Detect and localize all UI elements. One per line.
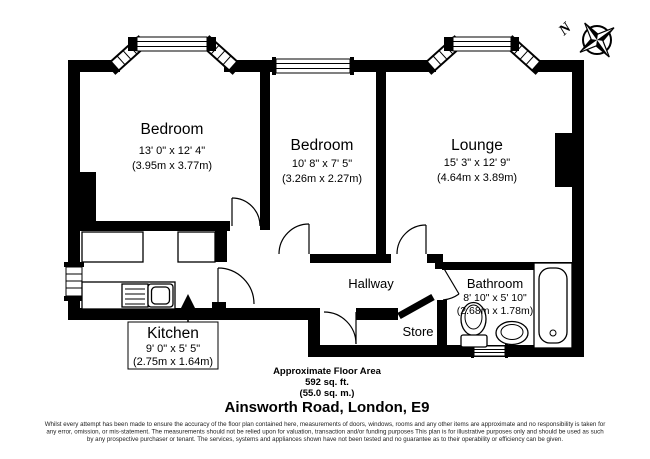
label-bedroom2-name: Bedroom [291, 137, 354, 154]
wall-bathroom-left [437, 300, 447, 345]
door-bedroom2 [279, 224, 309, 254]
wall-bed1-bottom [80, 221, 230, 231]
bay1-window-center [137, 37, 207, 51]
partition-bed1-bed2 [260, 72, 270, 230]
wall-bed2-bottom [310, 254, 378, 263]
disclaimer-line2: any error, omission, or mis-statement. T… [46, 429, 604, 436]
bay-window-lounge [422, 35, 545, 75]
floorplan-drawing: N Bedroom 13' 0" x 12' 4" (3.95m x 3.77m… [0, 0, 650, 459]
label-lounge-metric: (4.64m x 3.89m) [437, 172, 517, 184]
basin [496, 322, 528, 345]
label-bedroom1-metric: (3.95m x 3.77m) [132, 160, 212, 172]
compass-north-label: N [555, 19, 575, 40]
door-kitchen [218, 268, 254, 304]
floor-area-sqm: (55.0 sq. m.) [300, 388, 355, 399]
toilet-cistern [461, 335, 487, 347]
kitchen-unit-right [178, 232, 215, 262]
footer: Approximate Floor Area 592 sq. ft. (55.0… [45, 366, 606, 443]
kitchen-sink [122, 284, 173, 307]
bay-window-bedroom1 [106, 35, 242, 75]
bathtub-drain [550, 330, 556, 336]
label-lounge-imperial: 15' 3" x 12' 9" [444, 157, 511, 169]
bay2-window-center [453, 37, 511, 51]
door-lounge [397, 225, 426, 254]
label-bedroom2-metric: (3.26m x 2.27m) [282, 173, 362, 185]
label-hallway: Hallway [348, 276, 394, 291]
label-bedroom1-imperial: 13' 0" x 12' 4" [139, 145, 206, 157]
disclaimer-line3: by any prospective purchaser or tenant. … [87, 436, 563, 443]
label-kitchen-name: Kitchen [147, 325, 199, 342]
property-address: Ainsworth Road, London, E9 [225, 399, 430, 416]
door-store-lobby [324, 312, 356, 344]
label-kitchen-imperial: 9' 0" x 5' 5" [146, 343, 200, 355]
partition-bed2-lounge [376, 72, 386, 263]
wall-bottom-step [308, 308, 320, 350]
wall-store-diagonal [399, 297, 433, 316]
wall-nub-bathroom-corner [435, 261, 443, 269]
bathtub [534, 263, 572, 348]
wall-lounge-bottom-stub-left [386, 254, 391, 263]
floorplan-page: N Bedroom 13' 0" x 12' 4" (3.95m x 3.77m… [0, 0, 650, 459]
bay1-corner-post-left [128, 37, 137, 51]
wall-bottom-left [68, 308, 312, 320]
kitchen-unit-left [82, 232, 143, 262]
bay2-corner-post-left [444, 37, 453, 51]
wall-kitchen-right-stub [215, 229, 227, 262]
doors [218, 198, 459, 344]
wall-top-mid2 [350, 60, 436, 72]
label-lounge-name: Lounge [451, 137, 503, 154]
label-bedroom1-name: Bedroom [141, 121, 204, 138]
label-bathroom-metric: (2.68m x 1.78m) [457, 305, 533, 317]
floor-area-heading: Approximate Floor Area [273, 366, 382, 377]
chimney-breast-lounge [555, 133, 572, 187]
kitchen-fixtures [82, 232, 215, 309]
compass: N [555, 19, 614, 57]
wall-right [572, 60, 584, 357]
door-nub-kitchen [212, 302, 226, 310]
disclaimer-line1: Whilst every attempt has been made to en… [45, 421, 606, 428]
wall-bottom-stub [356, 308, 398, 320]
window-bedroom2 [272, 57, 354, 75]
label-bathroom-name: Bathroom [467, 276, 523, 291]
window-kitchen [64, 262, 84, 301]
label-bedroom2-imperial: 10' 8" x 7' 5" [292, 158, 352, 170]
door-bedroom1 [232, 198, 260, 226]
door-bathroom [443, 267, 459, 300]
bay1-corner-post-right [207, 37, 216, 51]
label-bathroom-imperial: 8' 10" x 5' 10" [463, 292, 527, 304]
floor-area-sqft: 592 sq. ft. [305, 377, 349, 388]
label-kitchen-metric: (2.75m x 1.64m) [133, 356, 213, 368]
kitchen-arrow-head [181, 294, 195, 308]
label-store: Store [402, 324, 433, 339]
